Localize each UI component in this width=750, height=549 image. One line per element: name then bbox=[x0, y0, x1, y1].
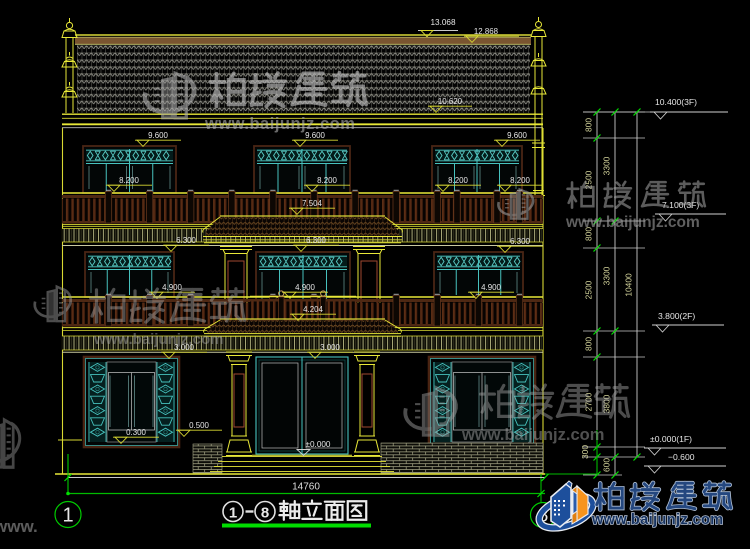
svg-text:7.504: 7.504 bbox=[302, 199, 322, 208]
svg-text:±0.000: ±0.000 bbox=[306, 440, 331, 449]
svg-text:10.400(3F): 10.400(3F) bbox=[655, 97, 697, 107]
svg-text:8.200: 8.200 bbox=[119, 176, 139, 185]
svg-text:−0.600: −0.600 bbox=[668, 452, 695, 462]
svg-text:www.baijunjz.com: www.baijunjz.com bbox=[93, 331, 223, 348]
svg-text:8.200: 8.200 bbox=[448, 176, 468, 185]
svg-text:www.baijunjz.com: www.baijunjz.com bbox=[461, 426, 604, 444]
svg-text:300: 300 bbox=[580, 445, 590, 459]
svg-text:9.600: 9.600 bbox=[148, 131, 168, 140]
svg-text:±0.000(1F): ±0.000(1F) bbox=[650, 434, 692, 444]
svg-text:12.868: 12.868 bbox=[474, 27, 499, 36]
svg-text:0.300: 0.300 bbox=[126, 428, 146, 437]
svg-text:3300: 3300 bbox=[602, 266, 612, 285]
svg-text:8.200: 8.200 bbox=[510, 176, 530, 185]
svg-text:www.: www. bbox=[0, 517, 38, 536]
svg-text:3.800(2F): 3.800(2F) bbox=[658, 311, 695, 321]
svg-text:8.200: 8.200 bbox=[317, 176, 337, 185]
svg-text:0.500: 0.500 bbox=[189, 421, 209, 430]
svg-text:8: 8 bbox=[261, 505, 269, 522]
svg-text:www.baijunjz.com: www.baijunjz.com bbox=[204, 115, 355, 133]
svg-text:3.000: 3.000 bbox=[320, 343, 340, 352]
svg-text:1: 1 bbox=[229, 505, 237, 522]
svg-text:2500: 2500 bbox=[584, 280, 594, 299]
svg-text:4.204: 4.204 bbox=[303, 305, 323, 314]
svg-text:www.baijunjz.com: www.baijunjz.com bbox=[565, 214, 700, 231]
svg-text:6.300: 6.300 bbox=[510, 237, 530, 246]
svg-text:4.900: 4.900 bbox=[295, 283, 315, 292]
svg-text:10400: 10400 bbox=[624, 273, 634, 297]
svg-text:600: 600 bbox=[602, 458, 612, 472]
svg-text:4.900: 4.900 bbox=[162, 283, 182, 292]
svg-text:13.068: 13.068 bbox=[430, 18, 455, 27]
svg-text:14760: 14760 bbox=[292, 482, 320, 493]
svg-text:1: 1 bbox=[62, 505, 73, 527]
svg-text:800: 800 bbox=[584, 118, 594, 132]
svg-text:4.900: 4.900 bbox=[481, 283, 501, 292]
svg-text:6.300: 6.300 bbox=[306, 236, 326, 245]
svg-text:3300: 3300 bbox=[602, 156, 612, 175]
svg-text:9.600: 9.600 bbox=[507, 131, 527, 140]
svg-text:www.baijunjz.com: www.baijunjz.com bbox=[591, 512, 724, 528]
svg-text:10.620: 10.620 bbox=[438, 97, 463, 106]
svg-text:800: 800 bbox=[584, 337, 594, 351]
svg-text:6.300: 6.300 bbox=[176, 236, 196, 245]
